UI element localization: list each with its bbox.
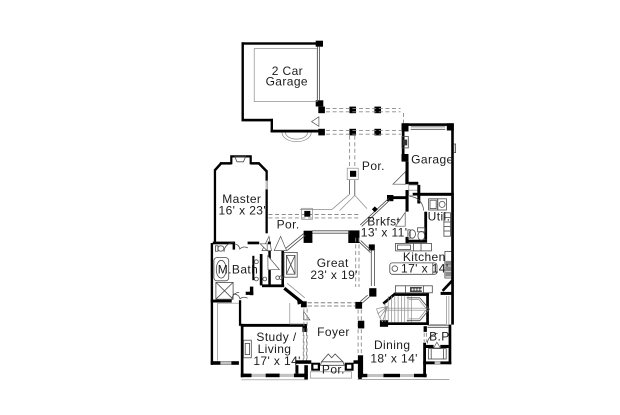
svg-text:B.P: B.P — [429, 330, 450, 344]
svg-text:Garage: Garage — [266, 75, 308, 89]
svg-text:Por.: Por. — [322, 363, 345, 377]
svg-text:Garage: Garage — [411, 153, 453, 167]
svg-text:17' x 14': 17' x 14' — [401, 261, 449, 275]
svg-text:17' x 14': 17' x 14' — [253, 354, 301, 368]
svg-text:M.Bath: M.Bath — [218, 263, 258, 277]
svg-text:23' x 19': 23' x 19' — [310, 268, 358, 282]
svg-text:Dining: Dining — [374, 338, 410, 352]
svg-text:Util.: Util. — [428, 209, 451, 223]
svg-text:Foyer: Foyer — [317, 325, 350, 339]
svg-text:Por.: Por. — [277, 217, 300, 231]
svg-text:16' x 23': 16' x 23' — [219, 204, 267, 218]
svg-text:18' x 14': 18' x 14' — [370, 351, 418, 365]
svg-text:Por.: Por. — [362, 159, 385, 173]
svg-text:13' x 11': 13' x 11' — [361, 226, 408, 240]
